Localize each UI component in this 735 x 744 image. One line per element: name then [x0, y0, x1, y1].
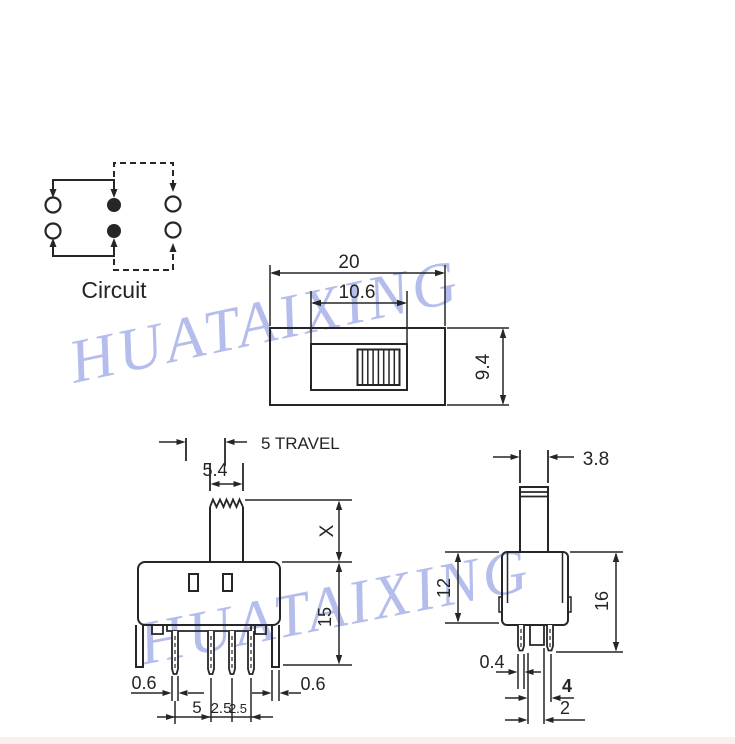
- dim-pin-pitch-3: 2.5: [229, 701, 247, 716]
- arrow-right-icon: [263, 690, 272, 696]
- arrow-up-icon: [336, 563, 342, 573]
- arrow-left-icon: [179, 690, 188, 696]
- arrow-left-icon: [252, 714, 261, 720]
- knob-serration-lines: [363, 351, 395, 385]
- terminal-open: [166, 197, 181, 212]
- body-hole: [223, 574, 232, 591]
- arrow-right-icon: [202, 714, 211, 720]
- circuit-label: Circuit: [81, 277, 147, 303]
- base-step: [255, 625, 266, 634]
- technical-drawing-page: HUATAIXING HUATAIXING Circuit: [0, 0, 735, 744]
- dim-body-height: 15: [315, 607, 335, 627]
- arrow-down-icon: [336, 655, 342, 665]
- terminal-common: [107, 198, 121, 212]
- arrow-left-icon: [525, 669, 534, 675]
- arrow-right-icon: [166, 714, 175, 720]
- circuit-dashed-link-top: [114, 163, 173, 186]
- terminal-common: [107, 224, 121, 238]
- terminal-open: [166, 223, 181, 238]
- mounting-lug-left: [136, 625, 143, 667]
- switch-body: [138, 562, 280, 625]
- mounting-lug-right: [272, 625, 279, 667]
- dim-overall-depth: 9.4: [473, 353, 494, 380]
- arrow-up-icon: [500, 328, 506, 338]
- arrow-down-icon: [455, 613, 461, 623]
- arrow-right-icon: [511, 454, 520, 460]
- arrow-down-icon: [500, 395, 506, 405]
- arrow-down-icon: [336, 552, 342, 562]
- center-post: [530, 625, 544, 645]
- terminal-open: [46, 198, 61, 213]
- dim-knob-height: X: [317, 524, 338, 537]
- terminal-pins: [172, 631, 254, 674]
- arrow-up-icon: [613, 553, 619, 563]
- body-hole: [189, 574, 198, 591]
- dim-slot-width: 10.6: [339, 282, 376, 303]
- terminal-open: [46, 224, 61, 239]
- dim-pin-width-left: 0.6: [131, 673, 156, 693]
- arrow-right-icon: [177, 439, 186, 445]
- arrow-right-icon: [519, 717, 528, 723]
- dim-knob-width: 5.4: [202, 460, 227, 480]
- dim-overall-height: 16: [592, 591, 612, 611]
- circuit-dashed-link-bottom: [114, 249, 173, 270]
- arrow-up-icon: [170, 243, 177, 252]
- circuit-solid-link-top: [53, 180, 114, 194]
- arrow-down-icon: [111, 189, 118, 198]
- arrow-right-icon: [519, 695, 528, 701]
- dim-knob-depth: 3.8: [583, 449, 609, 470]
- arrow-down-icon: [170, 183, 177, 192]
- circuit-diagram: Circuit: [46, 163, 181, 303]
- switch-body-side: [502, 552, 568, 625]
- arrow-left-icon: [311, 300, 321, 306]
- page-edge-strip: [0, 737, 735, 744]
- arrow-right-icon: [234, 481, 243, 487]
- dim-pin-span: 4: [562, 676, 572, 696]
- arrow-right-icon: [397, 300, 407, 306]
- arrow-right-icon: [435, 270, 445, 276]
- dim-post-width: 2: [560, 698, 570, 718]
- arrow-right-icon: [509, 669, 518, 675]
- arrow-left-icon: [270, 270, 280, 276]
- front-view: 5 TRAVEL 5.4 X 15: [131, 434, 352, 724]
- arrow-up-icon: [336, 501, 342, 511]
- dim-body-depth: 12: [434, 578, 454, 598]
- knob-serrated-top: [210, 500, 243, 508]
- arrow-left-icon: [280, 690, 289, 696]
- dim-overall-width: 20: [338, 252, 359, 273]
- arrow-left-icon: [226, 439, 235, 445]
- top-view-slot: [311, 344, 407, 390]
- base-step: [152, 625, 163, 634]
- arrow-up-icon: [111, 238, 118, 247]
- dim-pin-pitch-1: 5: [192, 698, 201, 717]
- arrow-down-icon: [613, 642, 619, 652]
- drawing-canvas: Circuit 20 10.6: [0, 0, 735, 744]
- arrow-left-icon: [549, 454, 558, 460]
- dim-pin-width-right: 0.6: [300, 674, 325, 694]
- arrow-up-icon: [455, 553, 461, 563]
- dim-travel: 5 TRAVEL: [261, 434, 340, 453]
- arrow-right-icon: [163, 690, 172, 696]
- dim-pin-thickness: 0.4: [479, 652, 504, 672]
- arrow-left-icon: [545, 717, 554, 723]
- side-view: 3.8 12 16 0.4: [434, 449, 623, 724]
- circuit-solid-link-bottom: [53, 242, 114, 256]
- top-view: 20 10.6 9.4: [270, 252, 509, 405]
- arrow-left-icon: [211, 481, 220, 487]
